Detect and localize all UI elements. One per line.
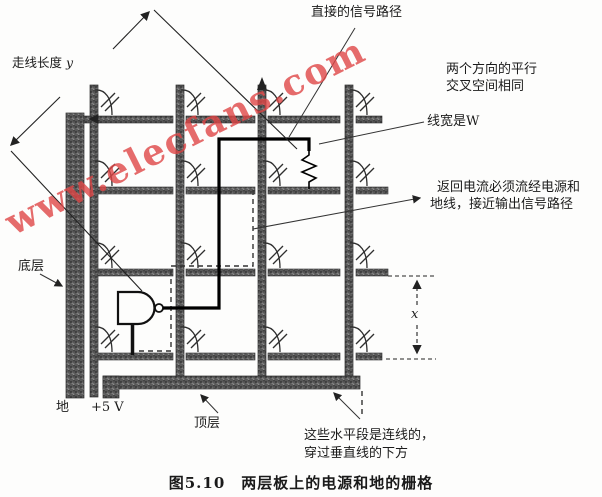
vertical-trace — [345, 85, 353, 377]
label-parallel-spacing: 两个方向的平行交叉空间相同 — [446, 61, 537, 95]
label-direct-signal-path: 直接的信号路径 — [311, 4, 402, 21]
label-return-current-2: 地线，接近输出信号路径 — [430, 196, 573, 213]
nand-gate — [118, 292, 163, 355]
label-horizontal-segments: 这些水平段是连线的，穿过垂直线的下方 — [304, 427, 434, 463]
ground-bus-bar — [66, 113, 84, 398]
trace-length-variable: y — [66, 55, 73, 70]
trace-length-dimension — [11, 10, 297, 291]
label-return-current-1: 返回电流必须流经电源和 — [437, 179, 580, 196]
return-current-leader — [253, 198, 420, 229]
bottom-layer-leader — [40, 274, 62, 286]
label-trace-length: 走线长度 y — [12, 54, 73, 71]
power-bus-bar — [90, 85, 98, 397]
top-layer-leader — [201, 395, 218, 413]
label-power: +5 V — [91, 399, 124, 416]
label-bottom-layer: 底层 — [18, 258, 44, 275]
bottom-bus — [103, 376, 360, 398]
vertical-trace — [258, 85, 266, 377]
label-line-width: 线宽是W — [427, 113, 479, 130]
horizontal-seg-leader — [334, 393, 360, 419]
label-ground: 地 — [56, 399, 69, 416]
figure-caption: 图5.10 两层板上的电源和地的栅格 — [0, 472, 602, 493]
vertical-traces — [66, 85, 353, 398]
termination-resistor-icon — [302, 151, 316, 189]
line-width-leader — [319, 122, 424, 144]
vertical-trace — [176, 85, 184, 377]
label-top-layer: 顶层 — [194, 415, 220, 432]
label-dimension-x: x — [411, 306, 418, 323]
figure-page: 直接的信号路径 走线长度 y 两个方向的平行交叉空间相同 线宽是W 返回电流必须… — [0, 0, 602, 497]
signal-path — [163, 139, 316, 308]
trace-end-arrow-icon — [257, 77, 267, 90]
